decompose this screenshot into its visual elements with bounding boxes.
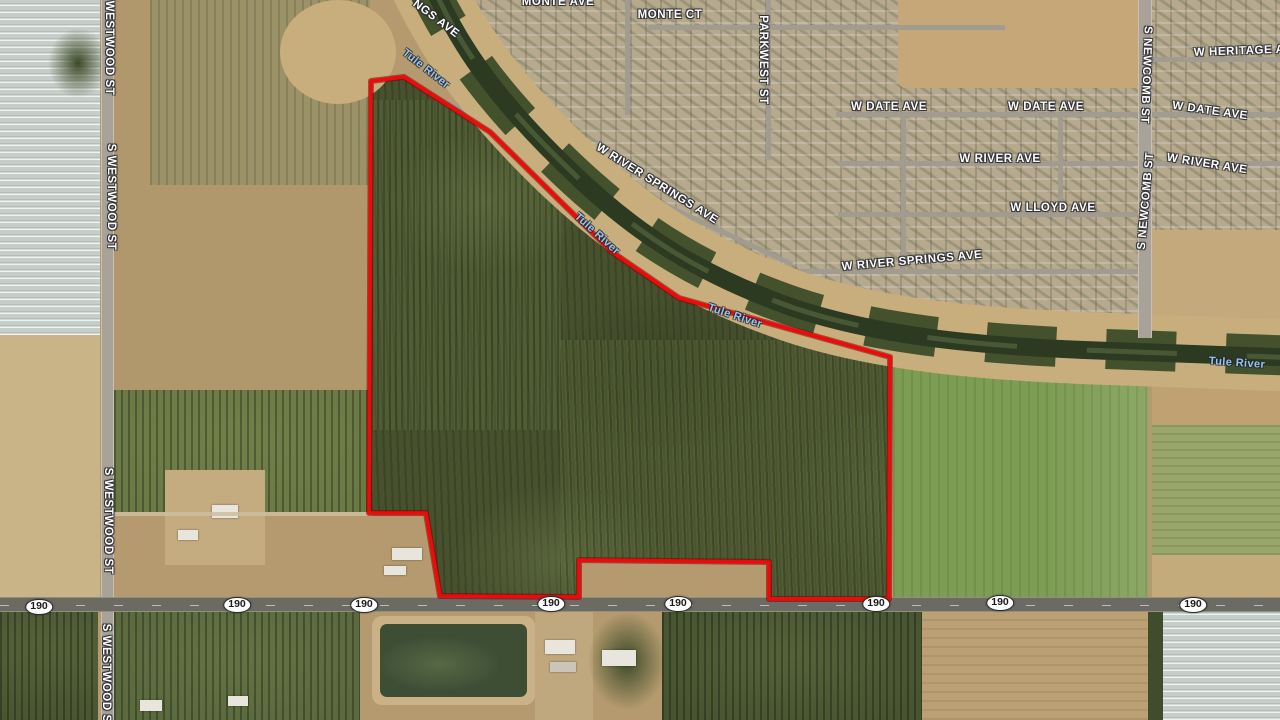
route-190-shield: 190: [537, 596, 565, 612]
street-label: W DATE AVE: [1172, 100, 1249, 122]
river-label: Tule River: [1208, 355, 1265, 371]
labels-layer: MONTE AVEMONTE CTW HERITAGE AVEW DATE AV…: [0, 0, 1280, 720]
street-label: W RIVER AVE: [1166, 152, 1248, 177]
satellite-map-canvas[interactable]: MONTE AVEMONTE CTW HERITAGE AVEW DATE AV…: [0, 0, 1280, 720]
street-label: W RIVER SPRINGS AVE: [841, 249, 983, 273]
street-label: S WESTWOOD ST: [103, 0, 115, 95]
route-190-shield: 190: [986, 595, 1014, 611]
street-label: W DATE AVE: [851, 101, 927, 113]
street-label: W HERITAGE AVE: [1194, 43, 1280, 59]
street-label: NGS AVE: [411, 0, 462, 40]
street-label: PARKWEST ST: [757, 15, 769, 104]
river-label: Tule River: [572, 211, 622, 258]
route-190-shield: 190: [350, 597, 378, 613]
river-label: Tule River: [706, 302, 763, 331]
route-190-shield: 190: [25, 599, 53, 615]
route-190-shield: 190: [664, 596, 692, 612]
street-label: S WESTWOOD ST: [105, 144, 117, 251]
street-label: S WESTWOOD ST: [102, 468, 114, 575]
street-label: W DATE AVE: [1008, 101, 1084, 113]
street-label: S NEWCOMB ST: [1138, 26, 1153, 124]
street-label: MONTE CT: [638, 9, 703, 21]
street-label: MONTE AVE: [522, 0, 595, 8]
route-190-shield: 190: [1179, 597, 1207, 613]
street-label: W RIVER AVE: [959, 153, 1040, 165]
river-label: Tule River: [400, 47, 452, 91]
street-label: W LLOYD AVE: [1010, 202, 1095, 214]
route-190-shield: 190: [862, 596, 890, 612]
route-190-shield: 190: [223, 597, 251, 613]
street-label: S WESTWOOD ST: [100, 624, 112, 720]
street-label: S NEWCOMB ST: [1136, 152, 1156, 251]
street-label: W RIVER SPRINGS AVE: [594, 142, 720, 227]
